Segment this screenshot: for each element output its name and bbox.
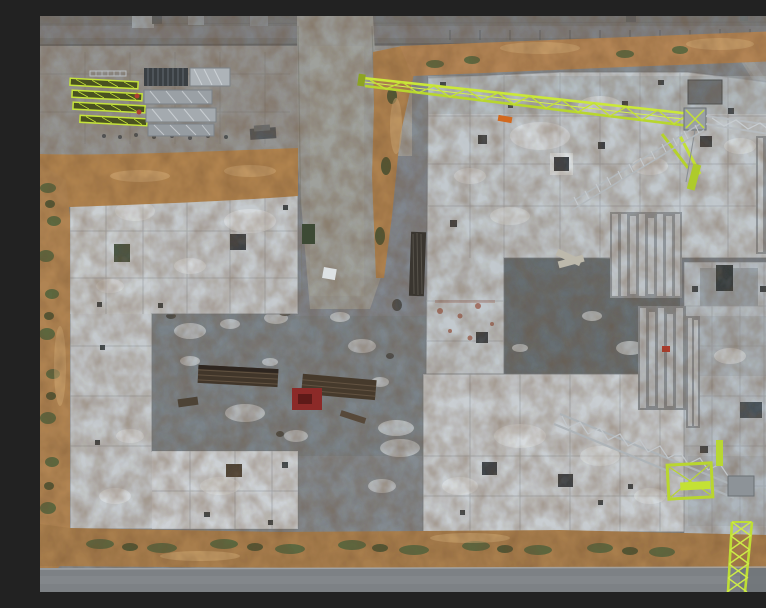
vertical-access-road	[297, 16, 384, 309]
formwork-stack	[144, 68, 188, 86]
construction-site-aerial-photo: 21.0	[40, 16, 766, 592]
green-bin	[302, 224, 315, 244]
white-tarp	[322, 267, 337, 280]
bottom-access-road	[40, 567, 766, 592]
lime-mast-piece	[716, 440, 723, 466]
site-container	[688, 80, 722, 104]
aerial-photo-canvas	[40, 16, 766, 592]
